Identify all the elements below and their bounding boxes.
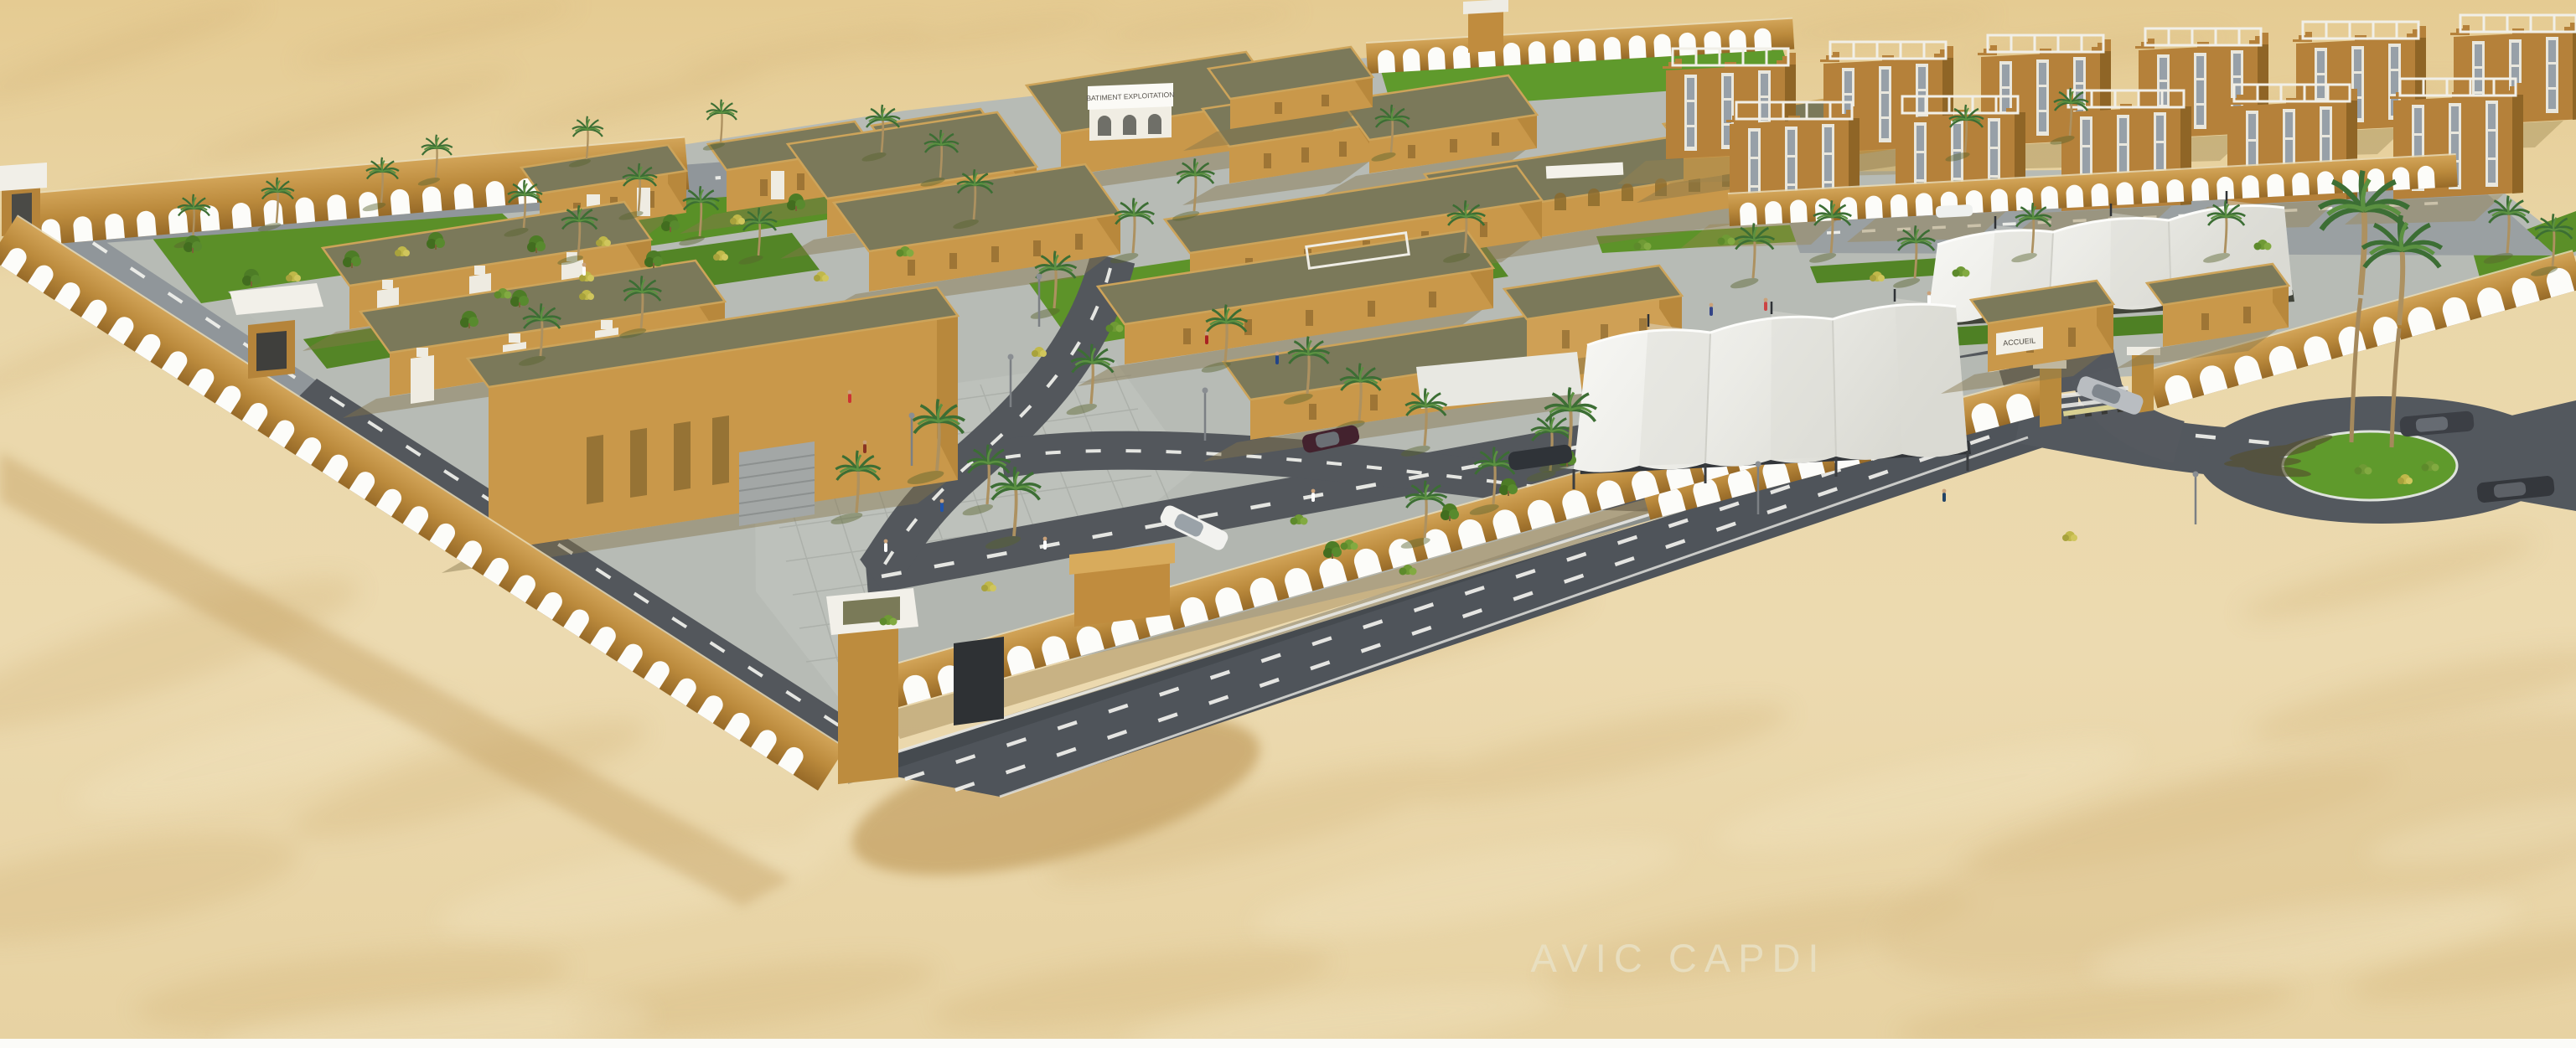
svg-text:AVIC CAPDI: AVIC CAPDI: [1531, 936, 1827, 980]
